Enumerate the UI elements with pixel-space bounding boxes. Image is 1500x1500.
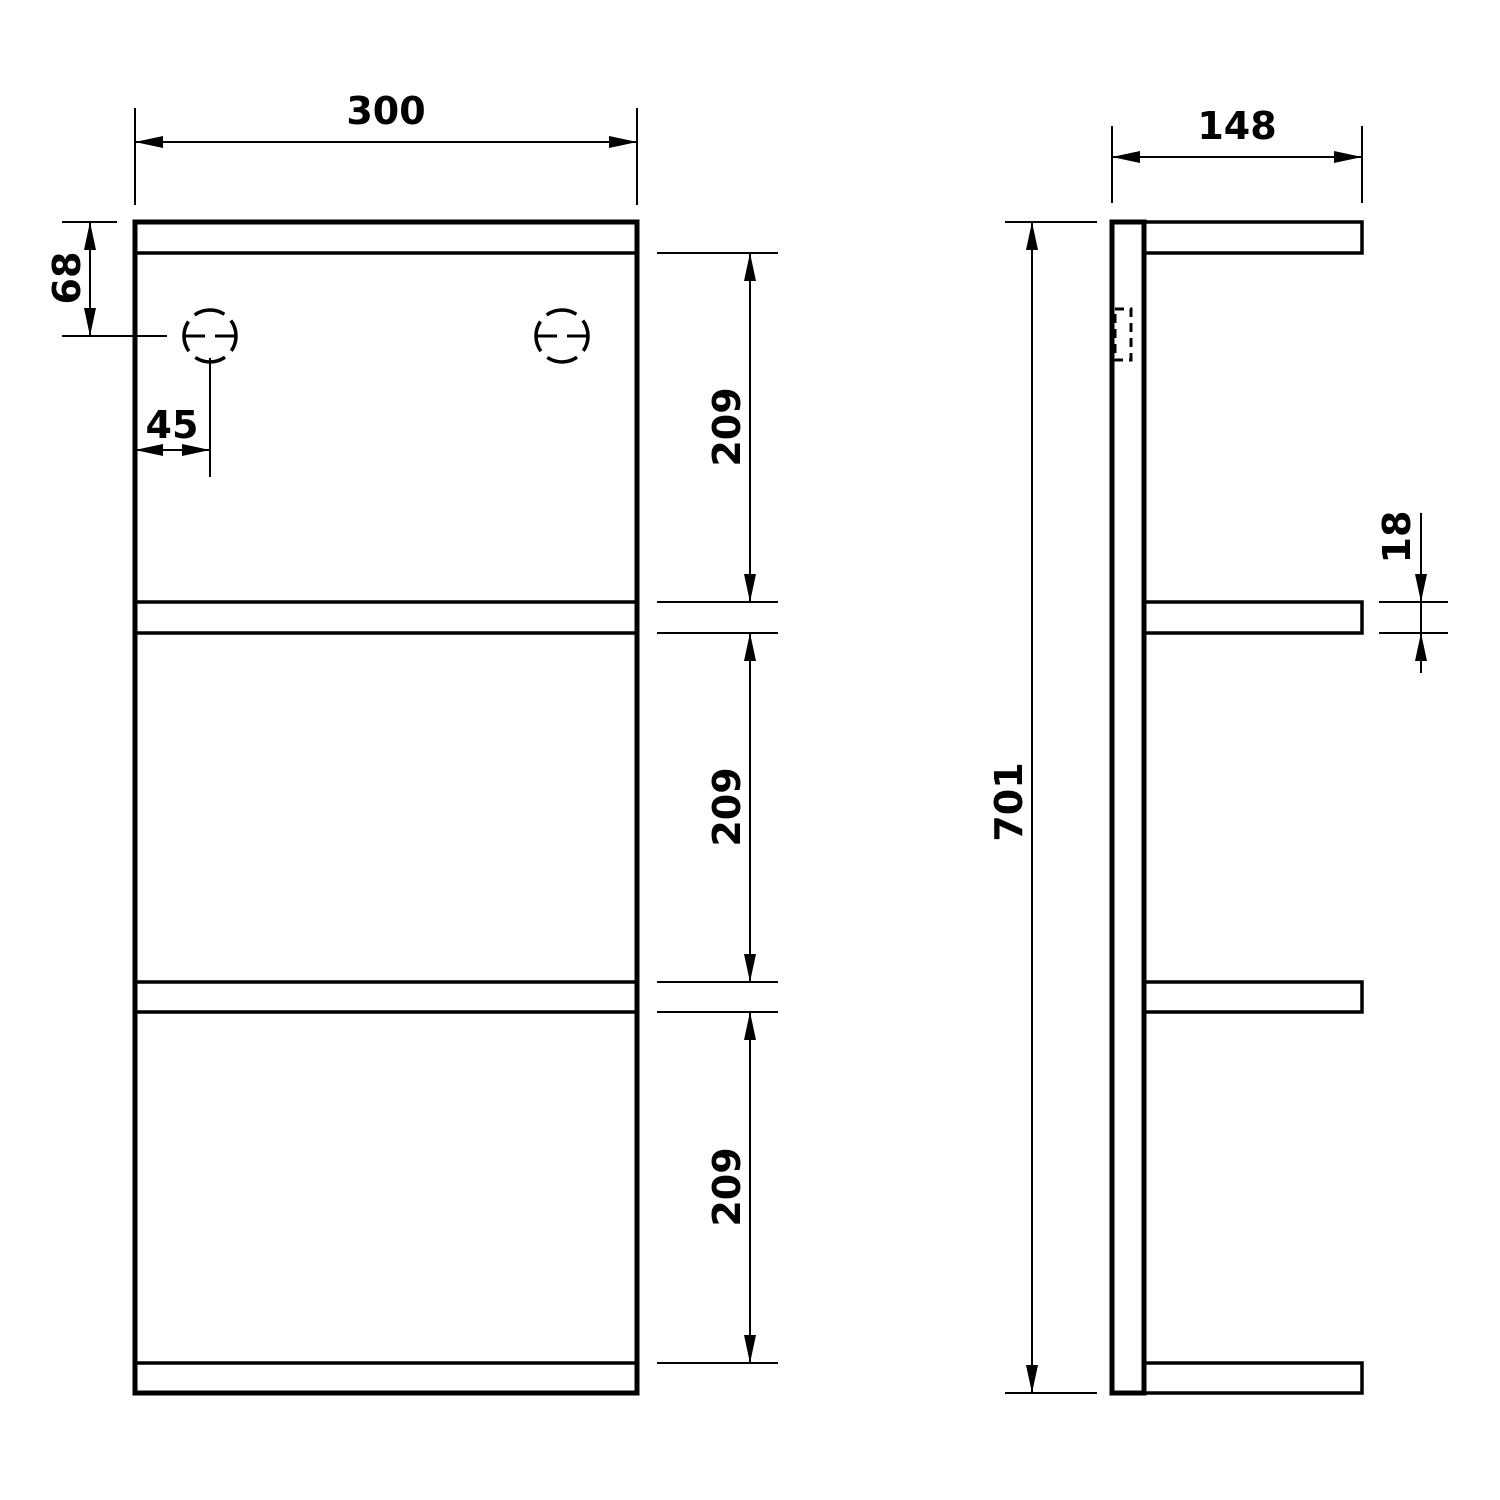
arrowhead-right: [609, 136, 637, 148]
dim-209-top-label: 209: [705, 387, 749, 466]
dim-209-middle-label: 209: [705, 767, 749, 846]
arrowhead-up: [744, 253, 756, 281]
arrowhead-down: [1026, 1365, 1038, 1393]
arrowhead-up: [84, 222, 96, 250]
side-shelf1: [1144, 602, 1362, 633]
arrowhead-down: [84, 308, 96, 336]
dim-compartment-bottom-209: 209: [657, 1012, 778, 1363]
arrowhead-down: [744, 1335, 756, 1363]
dim-148-label: 148: [1197, 104, 1276, 148]
dim-209-bottom-label: 209: [705, 1147, 749, 1226]
side-bottom-board: [1144, 1363, 1362, 1393]
mounting-hole-left: [184, 310, 236, 362]
dim-depth-148: 148: [1112, 104, 1362, 203]
dim-45-label: 45: [146, 403, 199, 447]
side-top-board: [1144, 222, 1362, 253]
arrowhead-down: [744, 574, 756, 602]
technical-drawing-page: 300 68 45 209 209: [0, 0, 1500, 1500]
side-shelf2: [1144, 982, 1362, 1012]
dim-width-label: 300: [346, 89, 425, 133]
side-view: [1112, 222, 1362, 1393]
arrowhead-right: [1334, 151, 1362, 163]
arrowhead-down: [1415, 574, 1427, 602]
arrowhead-left: [135, 136, 163, 148]
dim-height-701: 701: [987, 222, 1097, 1393]
dim-width-300: 300: [135, 89, 637, 205]
dim-shelf-thickness-18: 18: [1375, 511, 1448, 673]
dim-68-label: 68: [45, 252, 89, 305]
dim-compartment-top-209: 209: [657, 253, 778, 602]
dim-compartment-middle-209: 209: [657, 633, 778, 982]
keyhole-hanger-hidden-outline: [1115, 309, 1131, 360]
dim-hole-from-side-45: 45: [135, 358, 210, 477]
mounting-hole-right: [536, 310, 588, 362]
arrowhead-up: [744, 1012, 756, 1040]
arrowhead-up: [1026, 222, 1038, 250]
arrowhead-up: [1415, 633, 1427, 661]
dim-701-label: 701: [987, 762, 1031, 841]
arrowhead-up: [744, 633, 756, 661]
dim-hole-from-top-68: 68: [45, 222, 167, 336]
arrowhead-left: [1112, 151, 1140, 163]
shelf-dimension-drawing: 300 68 45 209 209: [0, 0, 1500, 1500]
side-back-panel: [1112, 222, 1144, 1393]
dim-18-label: 18: [1375, 511, 1419, 564]
arrowhead-down: [744, 954, 756, 982]
